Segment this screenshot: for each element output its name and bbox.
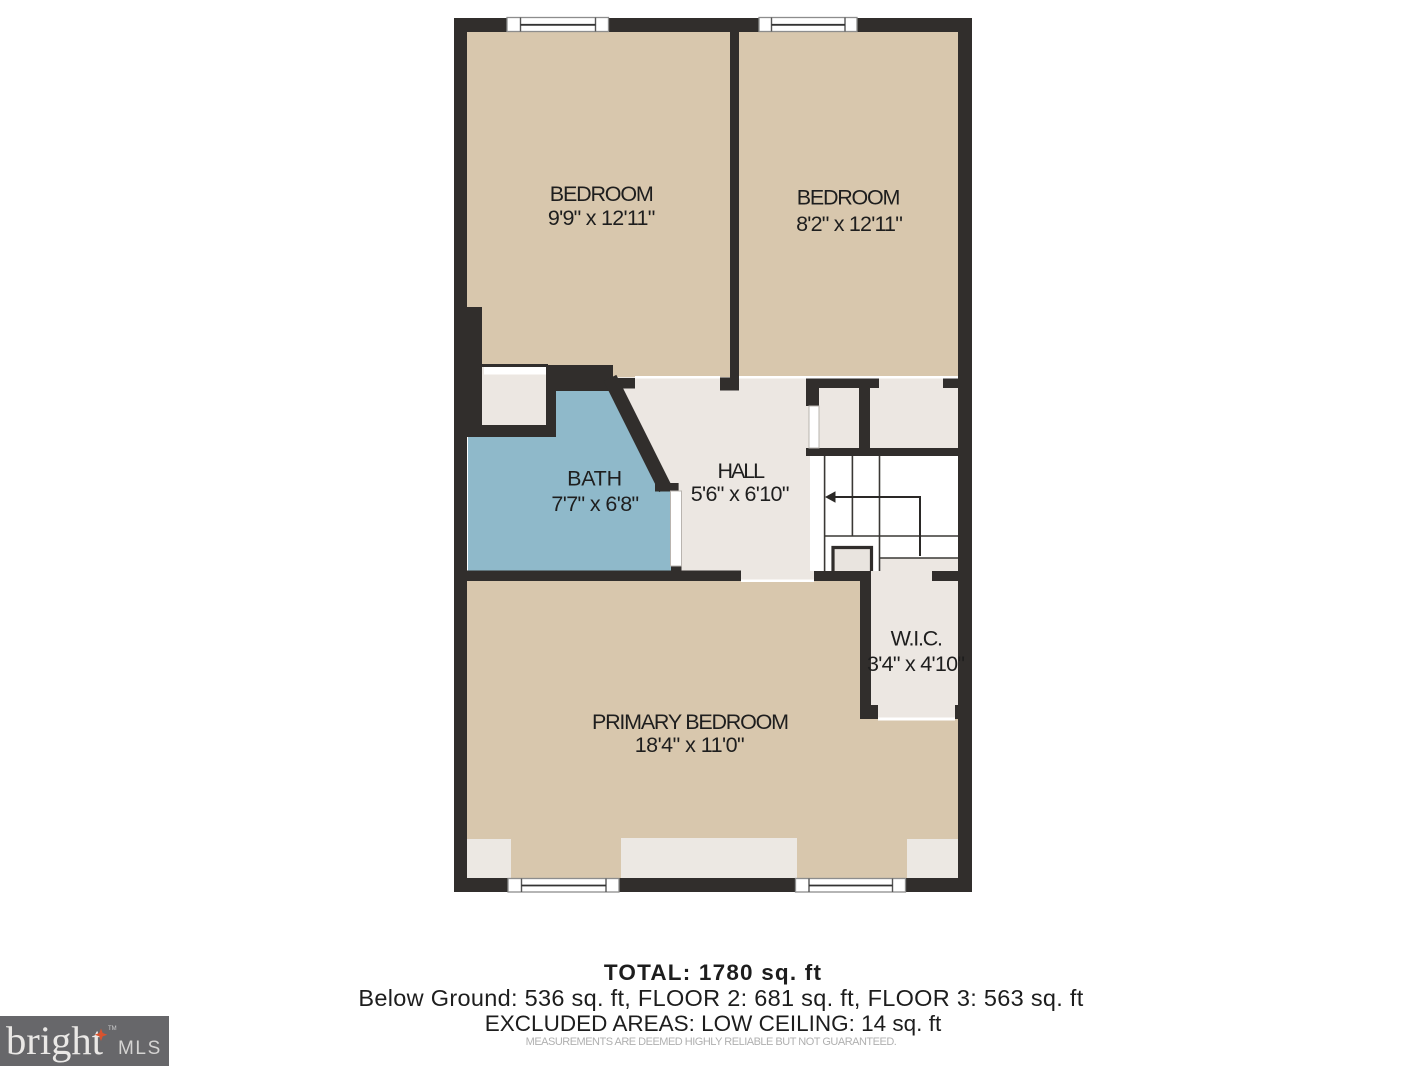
svg-text:bright: bright: [6, 1018, 103, 1063]
svg-text:BEDROOM: BEDROOM: [550, 182, 654, 206]
svg-text:BEDROOM: BEDROOM: [797, 186, 901, 210]
svg-text:HALL: HALL: [718, 459, 766, 483]
svg-text:3'4" x 4'10": 3'4" x 4'10": [867, 652, 965, 676]
svg-text:9'9" x 12'11": 9'9" x 12'11": [548, 206, 656, 230]
svg-text:18'4" x 11'0": 18'4" x 11'0": [635, 733, 745, 757]
svg-text:MLS: MLS: [118, 1038, 162, 1059]
svg-text:7'7" x 6'8": 7'7" x 6'8": [551, 492, 639, 516]
svg-text:W.I.C.: W.I.C.: [891, 627, 943, 651]
svg-text:TM: TM: [108, 1026, 117, 1032]
svg-text:8'2" x 12'11": 8'2" x 12'11": [796, 212, 903, 236]
svg-text:BATH: BATH: [567, 466, 622, 490]
svg-text:5'6" x 6'10": 5'6" x 6'10": [691, 482, 790, 506]
svg-text:PRIMARY BEDROOM: PRIMARY BEDROOM: [592, 710, 789, 734]
